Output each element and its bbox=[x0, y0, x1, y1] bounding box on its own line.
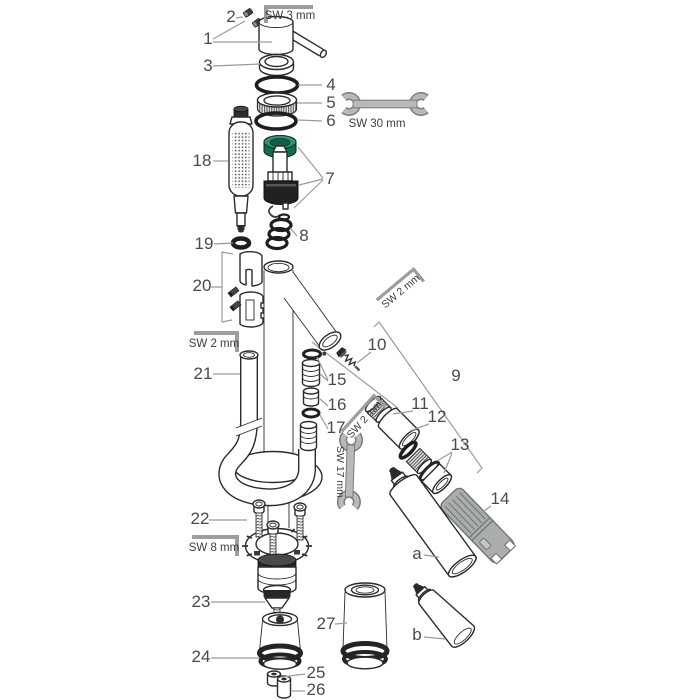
part-label-5: 5 bbox=[326, 93, 335, 112]
part-label-2: 2 bbox=[226, 7, 235, 26]
part-label-22: 22 bbox=[191, 509, 210, 528]
part-label-a: a bbox=[412, 544, 422, 563]
part-label-15: 15 bbox=[328, 370, 347, 389]
tool-label-sw2-top: SW 2 mm bbox=[189, 338, 239, 350]
part-27-socket-cylinder bbox=[343, 583, 387, 669]
part-label-16: 16 bbox=[328, 395, 347, 414]
part-20-clamp-shells bbox=[228, 252, 266, 327]
part-label-12: 12 bbox=[428, 407, 447, 426]
part-label-27: 27 bbox=[317, 614, 336, 633]
part-label-1: 1 bbox=[203, 29, 212, 48]
part-label-17: 17 bbox=[327, 418, 346, 437]
part-label-19: 19 bbox=[195, 234, 214, 253]
tool-sw2-mid-allen-key-icon: SW 2 mm bbox=[377, 269, 424, 312]
part-4-o-ring bbox=[257, 77, 298, 93]
part-16-adapter bbox=[304, 388, 319, 406]
part-label-14: 14 bbox=[491, 489, 510, 508]
part-label-10: 10 bbox=[368, 335, 387, 354]
part-label-26: 26 bbox=[307, 680, 326, 699]
part-label-8: 8 bbox=[299, 226, 308, 245]
part-18-hand-shower bbox=[229, 106, 253, 232]
part-label-9: 9 bbox=[451, 366, 460, 385]
part-15-check-valve bbox=[303, 360, 320, 387]
diagram-canvas: SW 2 mm SW 2 mm bbox=[0, 0, 700, 700]
part-label-3: 3 bbox=[203, 56, 212, 75]
part-label-b: b bbox=[412, 625, 421, 644]
tool-label-sw3: SW 3 mm bbox=[265, 10, 315, 22]
tool-sw30-wrench-icon bbox=[344, 96, 426, 112]
part-label-13: 13 bbox=[451, 435, 470, 454]
part-label-7: 7 bbox=[325, 169, 334, 188]
part-label-4: 4 bbox=[326, 75, 335, 94]
exploded-parts-diagram: SW 2 mm SW 2 mm bbox=[0, 0, 700, 700]
tool-label-sw17: SW 17 mm bbox=[334, 446, 346, 498]
tool-label-sw30: SW 30 mm bbox=[349, 118, 406, 130]
part-label-18: 18 bbox=[193, 151, 212, 170]
part-7-cartridge bbox=[264, 136, 298, 218]
part-26-pin bbox=[278, 676, 291, 698]
part-label-21: 21 bbox=[194, 364, 213, 383]
part-label-6: 6 bbox=[326, 111, 335, 130]
part-3-collar bbox=[260, 55, 294, 76]
part-label-23: 23 bbox=[192, 592, 211, 611]
part-24-socket-sleeve bbox=[260, 613, 301, 670]
part-17-o-ring bbox=[303, 409, 319, 417]
tool-label-sw8: SW 8 mm bbox=[189, 542, 239, 554]
part-8-seal-set bbox=[267, 215, 291, 249]
spout-o-ring bbox=[304, 350, 327, 358]
part-1-handle bbox=[259, 17, 328, 59]
part-label-20: 20 bbox=[193, 276, 212, 295]
part-label-11: 11 bbox=[411, 394, 429, 413]
part-label-24: 24 bbox=[192, 647, 211, 666]
part-19-washer bbox=[233, 239, 249, 248]
